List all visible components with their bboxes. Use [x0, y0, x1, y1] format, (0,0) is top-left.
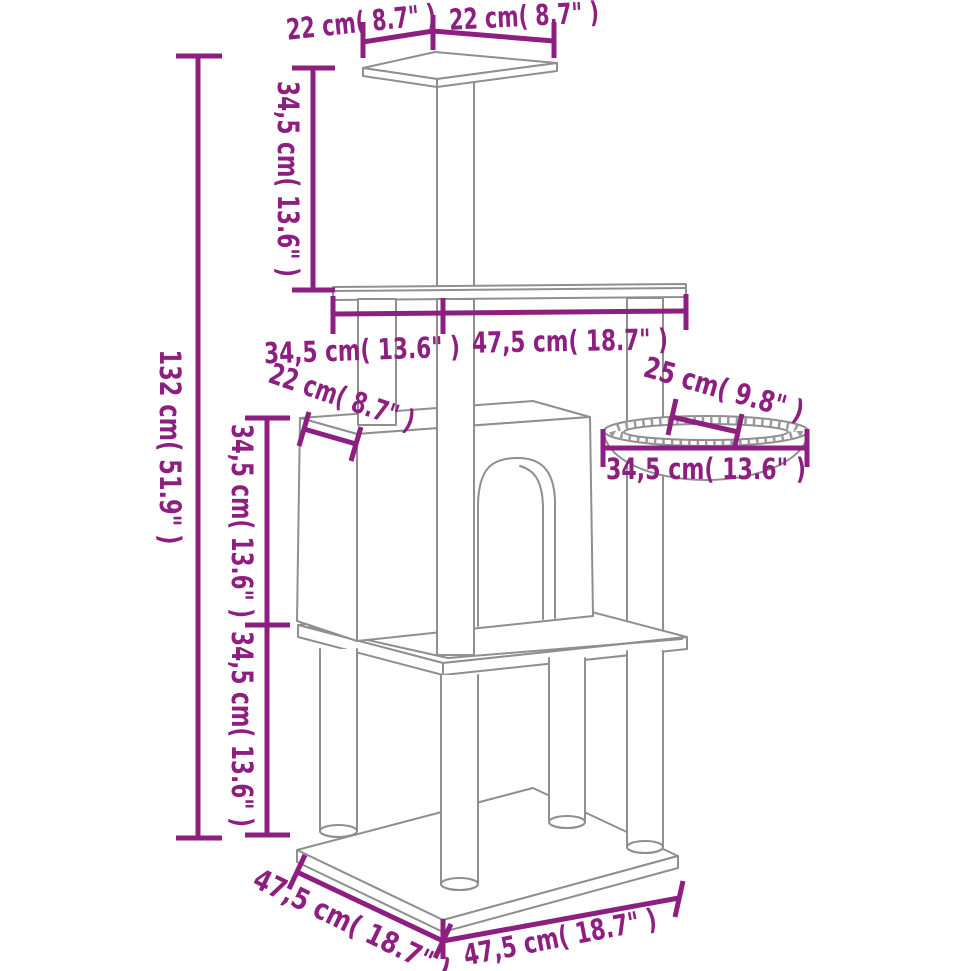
base-post-left	[320, 649, 357, 837]
base-post-right	[627, 651, 663, 853]
dimension-diagram: 132 cm( 51.9" ) 34,5 cm( 13.6" ) 22 cm( …	[0, 0, 970, 971]
dim-top-pole-height: 34,5 cm( 13.6" )	[271, 68, 335, 290]
dim-top-platform: 22 cm( 8.7" ) 22 cm( 8.7" )	[285, 0, 600, 58]
dim-lower-section-height-label: 34,5 cm( 13.6" )	[225, 631, 259, 827]
dim-total-height: 132 cm( 51.9" )	[153, 56, 222, 838]
dim-basket-outer-label: 34,5 cm( 13.6" )	[606, 452, 806, 486]
cat-tree-line-drawing	[297, 52, 808, 932]
dim-total-height-label: 132 cm( 51.9" )	[153, 350, 187, 545]
diagram-canvas: 132 cm( 51.9" ) 34,5 cm( 13.6" ) 22 cm( …	[0, 0, 970, 971]
base-post-back	[549, 658, 585, 828]
dim-middle-platform-width-label: 47,5 cm( 18.7" )	[472, 322, 669, 359]
dim-house-section-height-label: 34,5 cm( 13.6" )	[225, 424, 259, 618]
dim-top-pole-height-label: 34,5 cm( 13.6" )	[271, 81, 305, 277]
top-pole	[437, 70, 474, 290]
base-post-front	[441, 675, 478, 890]
dim-top-width-right-label: 22 cm( 8.7" )	[448, 0, 600, 37]
dim-section-heights: 34,5 cm( 13.6" ) 34,5 cm( 13.6" )	[225, 418, 290, 835]
house-left-wall	[297, 418, 357, 641]
